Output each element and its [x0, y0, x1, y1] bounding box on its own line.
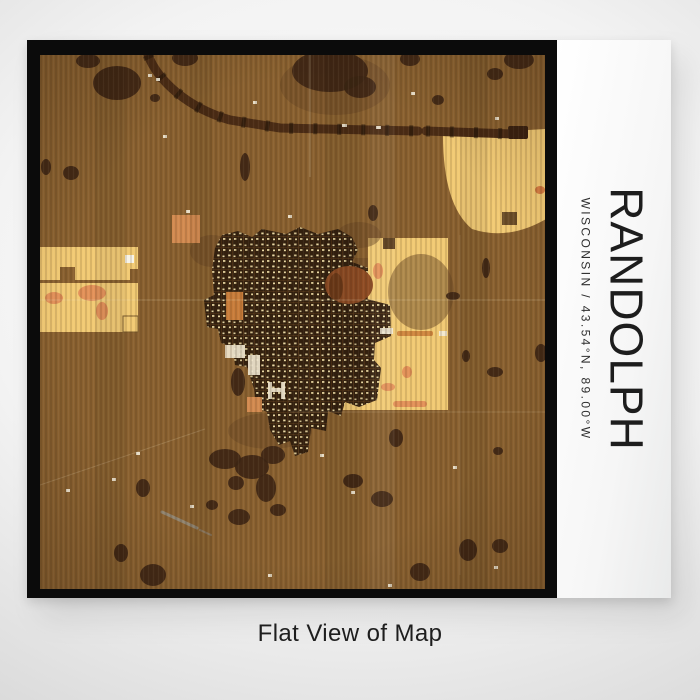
map-artwork	[40, 55, 545, 589]
product-view: RANDOLPH WISCONSIN / 43.54°N, 89.00°W Fl…	[0, 0, 700, 700]
view-caption: Flat View of Map	[0, 620, 700, 648]
poster-side-panel: RANDOLPH WISCONSIN / 43.54°N, 89.00°W	[557, 40, 671, 598]
wood-texture	[40, 55, 545, 589]
map-frame	[27, 40, 557, 598]
vertical-text-block: RANDOLPH WISCONSIN / 43.54°N, 89.00°W	[579, 187, 650, 451]
poster-subtitle: WISCONSIN / 43.54°N, 89.00°W	[579, 187, 593, 451]
poster-title: RANDOLPH	[604, 187, 650, 451]
poster: RANDOLPH WISCONSIN / 43.54°N, 89.00°W	[27, 40, 671, 598]
